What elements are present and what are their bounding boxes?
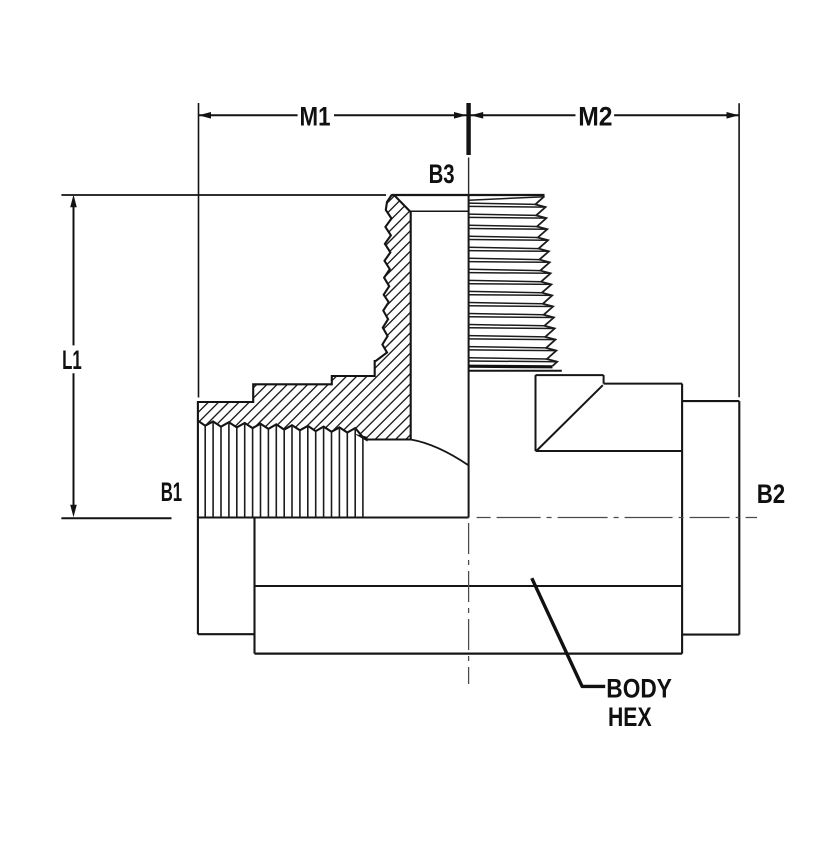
svg-text:M2: M2 [578, 102, 612, 132]
svg-text:HEX: HEX [608, 702, 652, 732]
svg-text:L1: L1 [62, 345, 82, 375]
svg-text:B1: B1 [161, 477, 182, 507]
svg-text:B3: B3 [429, 159, 455, 189]
svg-text:M1: M1 [300, 102, 331, 132]
svg-text:B2: B2 [757, 479, 786, 509]
svg-text:BODY: BODY [606, 674, 672, 704]
